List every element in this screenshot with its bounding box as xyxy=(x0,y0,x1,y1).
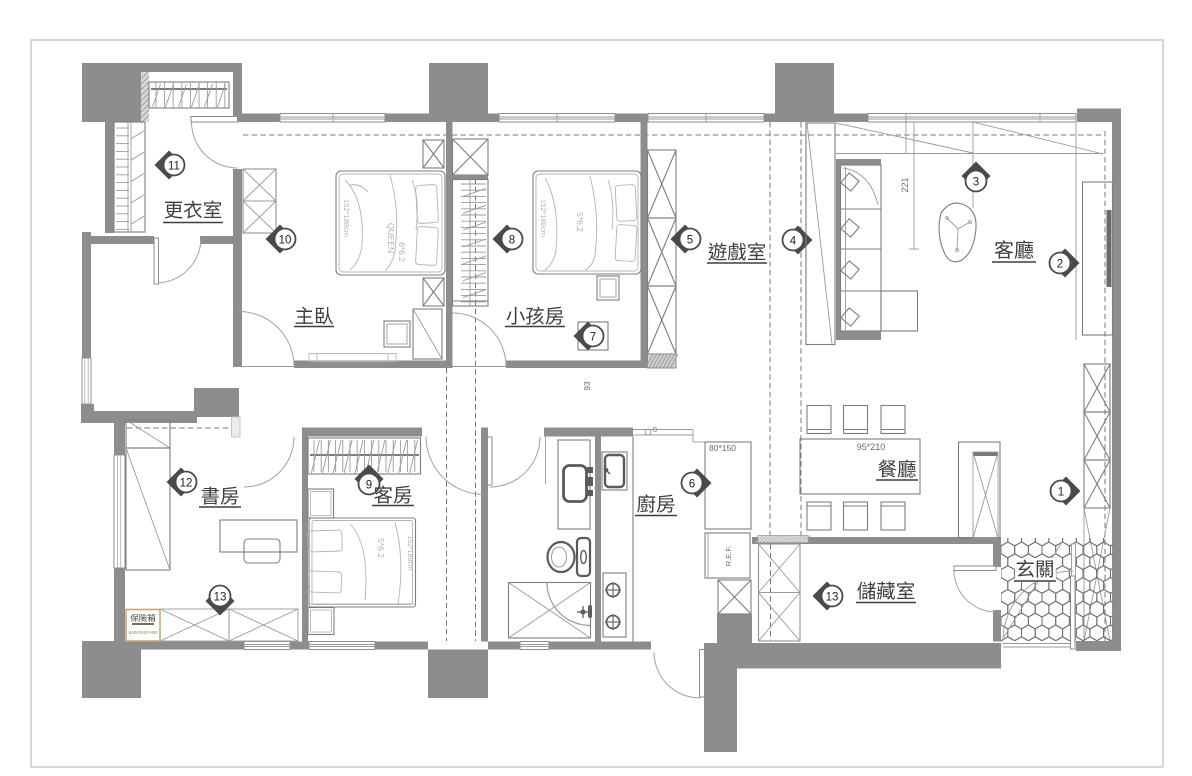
svg-text:6: 6 xyxy=(689,478,695,490)
svg-text:13: 13 xyxy=(214,591,227,603)
svg-text:11: 11 xyxy=(168,160,180,172)
svg-text:9: 9 xyxy=(366,479,372,491)
svg-text:3: 3 xyxy=(973,176,979,188)
svg-text:12: 12 xyxy=(180,477,193,489)
svg-text:W45*D45*H50: W45*D45*H50 xyxy=(128,630,158,635)
svg-text:152*188cm: 152*188cm xyxy=(342,199,351,237)
svg-text:5: 5 xyxy=(687,234,693,246)
svg-text:10: 10 xyxy=(279,234,292,246)
svg-text:13: 13 xyxy=(826,591,839,603)
svg-text:152*188cm: 152*188cm xyxy=(539,199,548,237)
svg-text:6*6.2: 6*6.2 xyxy=(397,242,407,262)
svg-text:5*6.2: 5*6.2 xyxy=(575,212,585,232)
svg-text:QUEEN: QUEEN xyxy=(386,223,396,253)
svg-text:80*150: 80*150 xyxy=(709,443,736,453)
svg-text:5*6.2: 5*6.2 xyxy=(376,538,386,558)
svg-text:1: 1 xyxy=(1058,486,1064,498)
svg-text:2: 2 xyxy=(1057,258,1063,270)
svg-text:93: 93 xyxy=(583,381,592,390)
svg-text:152*188cm: 152*188cm xyxy=(406,535,413,571)
svg-text:R.E.F.: R.E.F. xyxy=(724,546,733,566)
svg-text:221: 221 xyxy=(900,177,910,192)
svg-text:4: 4 xyxy=(790,235,797,247)
svg-text:8: 8 xyxy=(509,234,515,246)
svg-text:95*210: 95*210 xyxy=(857,442,886,452)
svg-text:7: 7 xyxy=(590,331,596,343)
